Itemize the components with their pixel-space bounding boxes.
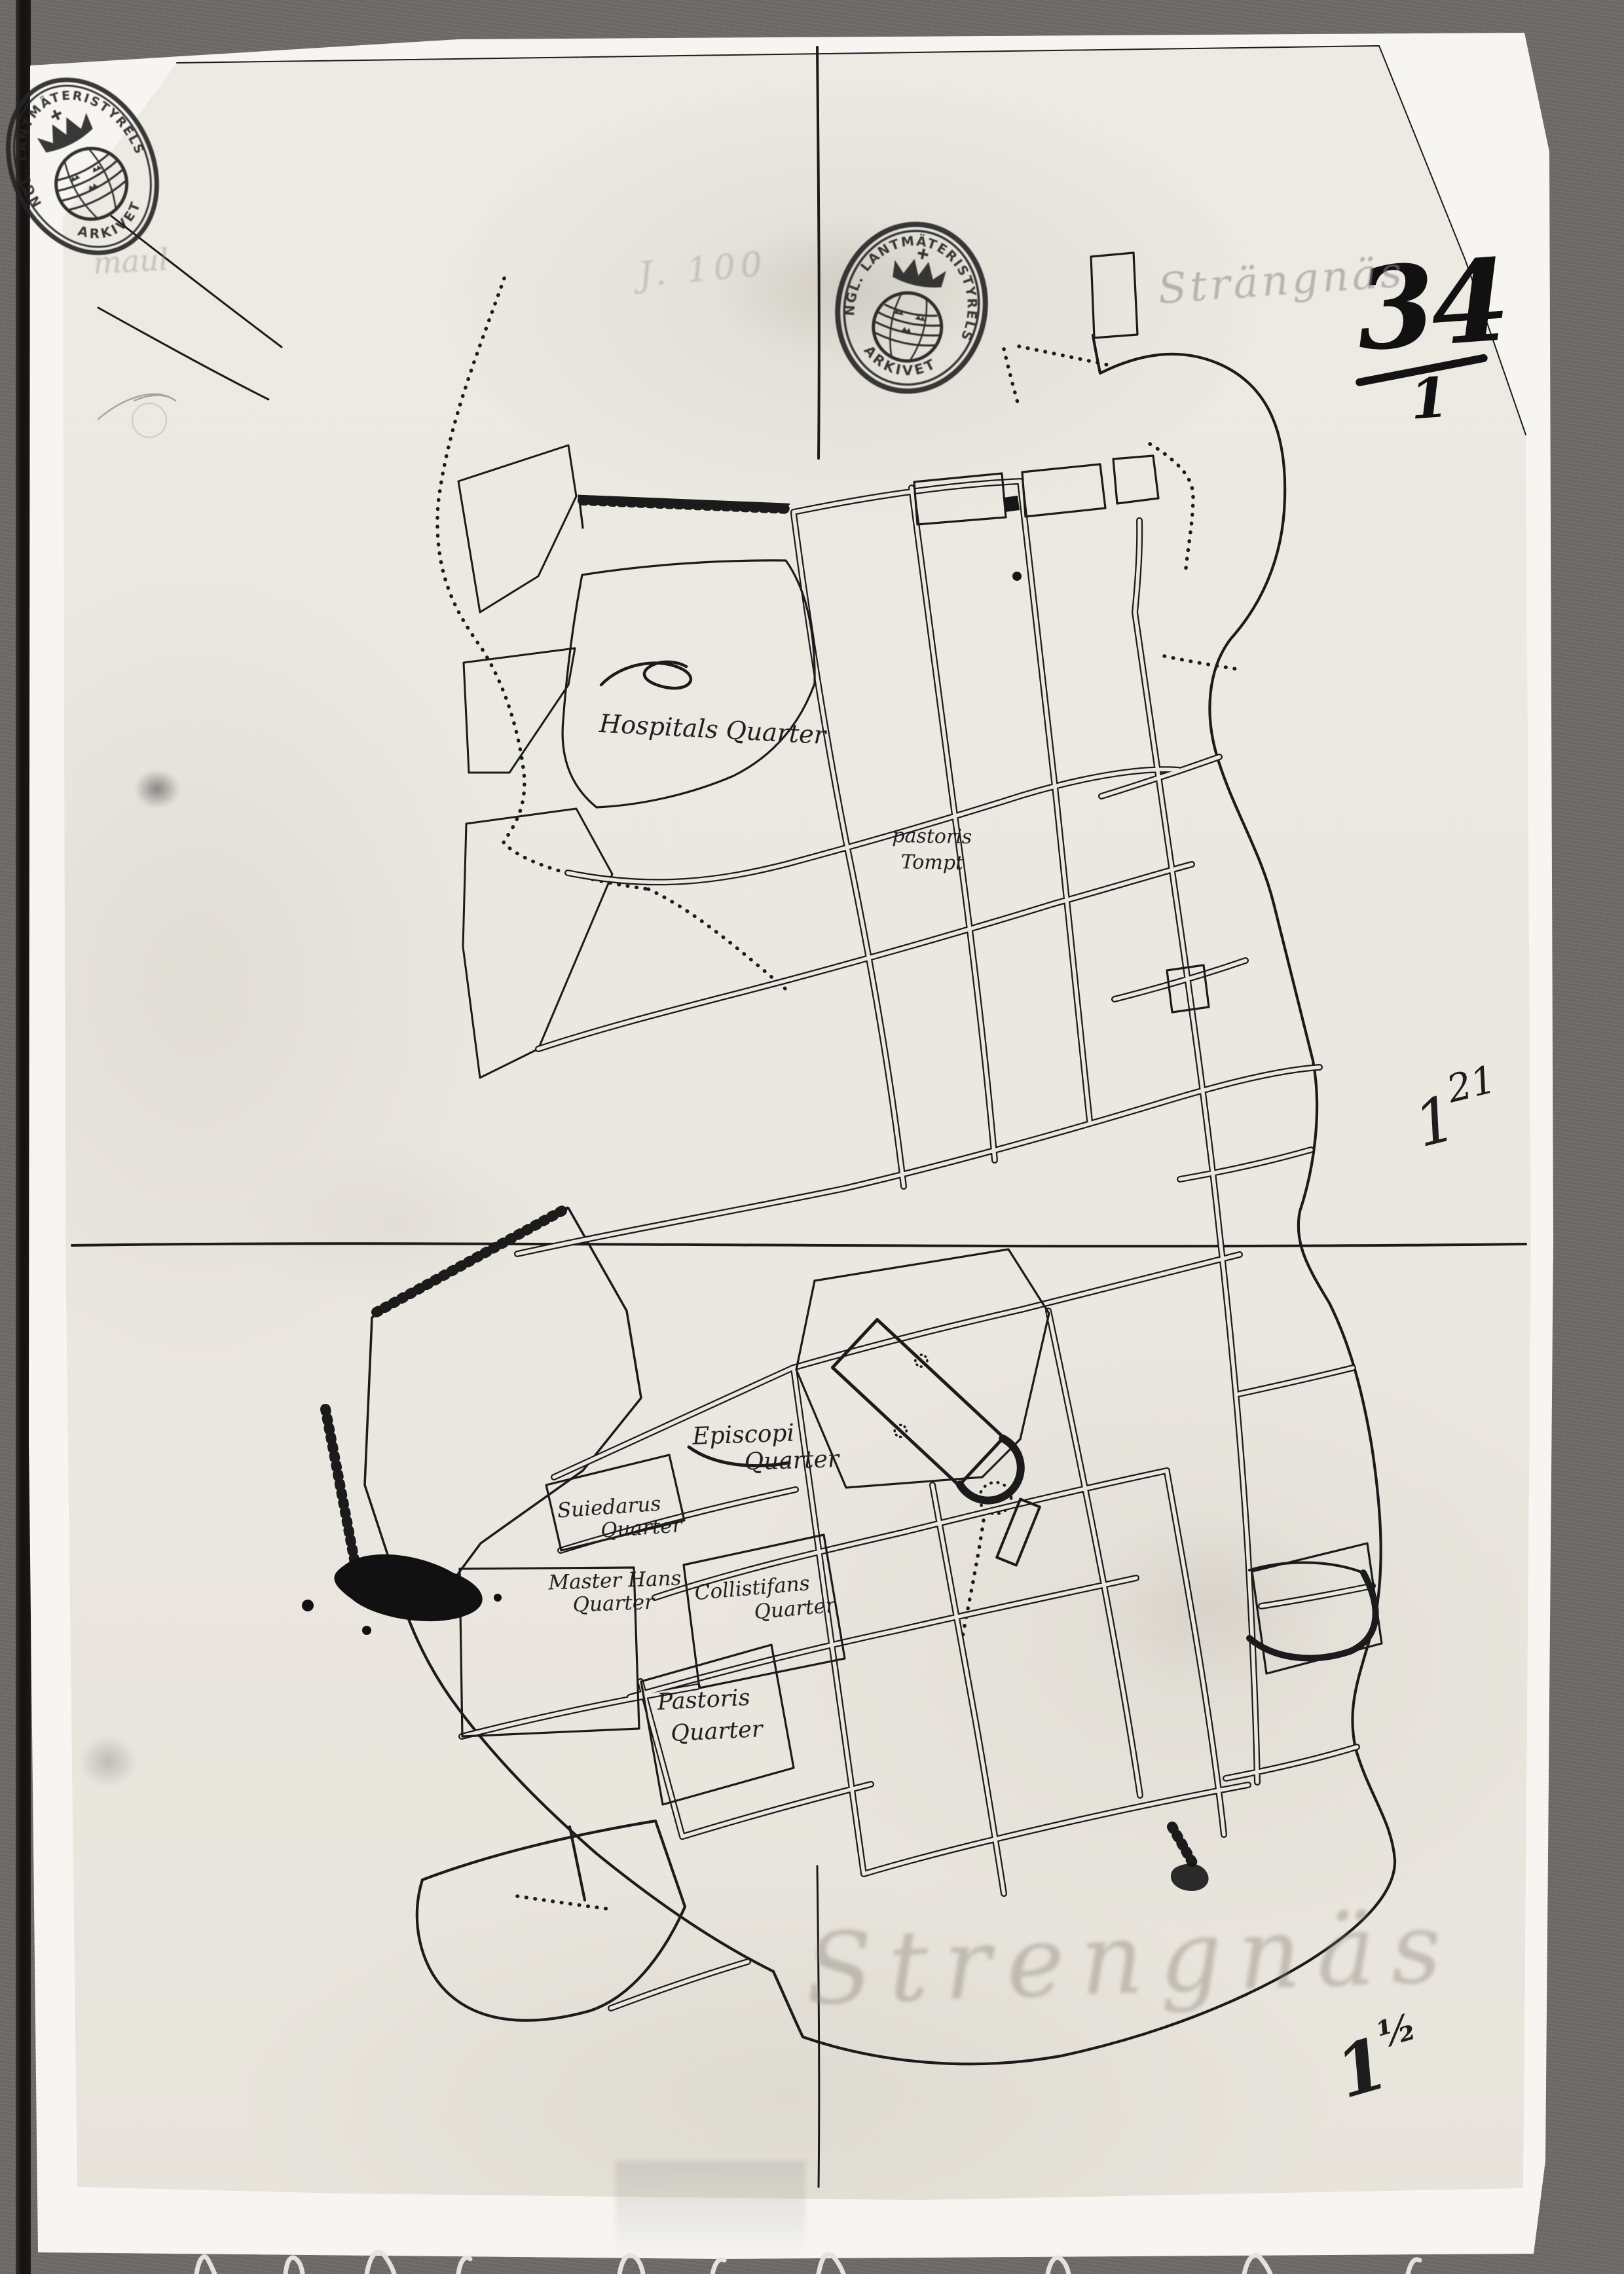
label-pastoris-tompt: pastoris Tompt — [891, 826, 972, 873]
label-master-hans-quarter: Master Hans Quarter — [548, 1568, 682, 1616]
scanned-map-page: { "background_color": "#6c6a66", "paper"… — [0, 0, 1624, 2274]
label-suiedarus-quarter: Suiedarus Quarter — [557, 1492, 683, 1545]
pencil-note-left: maul — [92, 242, 170, 281]
ghost-bleedthrough-text: Strengnäs — [803, 1891, 1459, 2028]
sheet-number-denominator: 1 — [1409, 365, 1514, 428]
label-line: Master Hans — [548, 1566, 682, 1594]
label-line: Episcopi — [692, 1420, 795, 1450]
label-line: Quarter — [744, 1447, 840, 1475]
label-episcopi-quarter: Episcopi Quarter — [692, 1420, 840, 1476]
pencil-sketch-marks — [98, 394, 175, 437]
town-outer-boundary — [394, 335, 1395, 2064]
label-line: Quarter — [600, 1514, 682, 1541]
label-line: pastoris — [892, 824, 972, 849]
cutoff-letter-tops — [196, 2252, 1420, 2274]
pond-enclosure — [1249, 1562, 1376, 1658]
ink-blot — [302, 1554, 502, 1635]
small-ink-marks — [1003, 496, 1209, 1891]
label-line: Tompt — [900, 852, 971, 873]
calligraphic-flourishes — [601, 662, 789, 1466]
label-line: Quarter — [572, 1590, 682, 1615]
hatched-parcels — [365, 445, 641, 1602]
label-pastoris-quarter: Pastoris Quarter — [657, 1685, 764, 1747]
label-line: Pastoris — [657, 1685, 751, 1715]
label-line: Quarter — [670, 1717, 763, 1746]
